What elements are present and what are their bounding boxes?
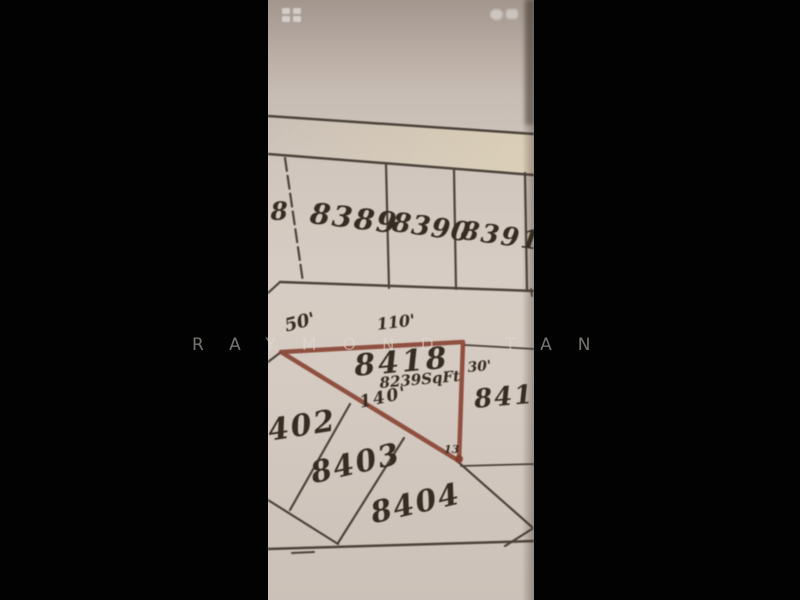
dim-right-side: 30' [467,359,492,375]
baseline [268,541,534,549]
notification-icon [282,8,290,14]
lot-label-partial: 8 [270,198,288,224]
lower-right-diagonal [505,529,532,546]
plat-map-drawing: 8 8389 8390 8391 50' 110' 8418 8239SqFt … [268,0,534,600]
boundary-line-lot-row-bottom [280,282,534,291]
plat-map-photo[interactable]: 8 8389 8390 8391 50' 110' 8418 8239SqFt … [268,0,534,600]
parcel-corner-knot [455,455,463,463]
signal-icon [490,9,503,20]
status-indicators [490,9,518,20]
notification-icons [282,8,302,22]
notification-icon [293,8,301,14]
lot-8419-south-line [461,464,534,466]
notification-icon [293,16,301,22]
diagonal-from-corner [456,460,532,527]
corner-point-label: 13 [444,444,459,455]
lot-8419-north-line [465,345,534,349]
lot-label-8419: 8419 [473,380,534,413]
baseline-dash [292,552,314,553]
lot-8402-top-line [268,352,281,362]
lower-left-diagonal [268,500,338,544]
lot-row-corner [268,282,280,293]
dim-top-side: 110' [376,312,416,333]
corner-tick [531,289,532,296]
battery-icon [506,9,518,19]
notification-icon [282,16,290,22]
